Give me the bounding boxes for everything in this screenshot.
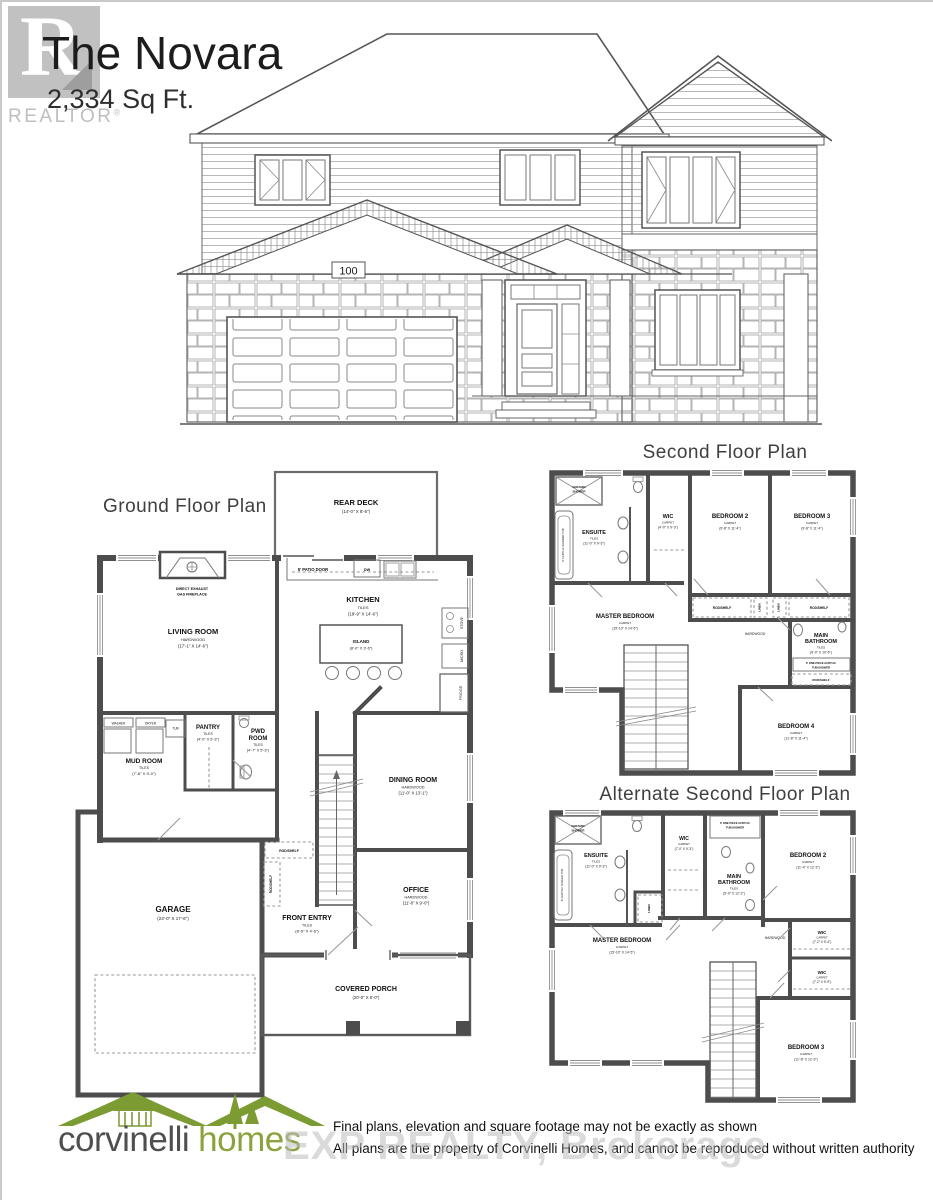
label-kitchen: KITCHEN	[346, 595, 379, 604]
label-linen: LINEN	[647, 904, 651, 912]
fridge: FRIDGE	[440, 674, 468, 712]
porch-post	[456, 1021, 470, 1035]
label-laundry-tub: TUB	[172, 727, 178, 731]
label-ceramic: CERAMIC	[572, 485, 586, 489]
front-elevation-drawing: 100	[172, 22, 832, 432]
label-fireplace-1: DIRECT EXHAUST	[176, 587, 209, 591]
right-fascia-band	[622, 234, 817, 250]
label-shower: SHOWER	[572, 490, 586, 494]
label-bedroom2-finish: CARPET	[724, 521, 736, 525]
alternate-floor-title: Alternate Second Floor Plan	[530, 784, 920, 806]
stairwell	[702, 962, 764, 1098]
label-garage: GARAGE	[155, 905, 191, 914]
garage: GARAGE (23'-0" X 17'-6")	[95, 818, 255, 1053]
label-bathroom: BATHROOM	[805, 639, 837, 645]
label-bedroom3-finish: CARPET	[806, 521, 818, 525]
label-micro: MICRO	[460, 650, 464, 662]
upper-right-window	[642, 152, 740, 228]
porch-post-left	[482, 280, 502, 396]
label-wic3-dims: (7'-2" X 5'-9")	[813, 980, 832, 984]
label-wic1-dims: (7'-0" X 9'-3")	[675, 847, 694, 851]
label-rear-deck-dims: (14'-0" X 8'-6")	[342, 509, 371, 514]
bedroom2-labels: BEDROOM 2 CARPET (11'-4" X 12'-3")	[763, 853, 827, 900]
label-bedroom2-dims: (9'-8" X 11'-4")	[719, 527, 741, 531]
garage-door-dashed-outline	[95, 975, 255, 1053]
upper-left-window	[255, 155, 330, 205]
sink	[615, 856, 625, 868]
covered-porch: COVERED PORCH (20'-0" X 6'-0")	[262, 927, 470, 1035]
label-mud-finish: TILES	[139, 766, 150, 770]
label-shower: SHOWER	[571, 829, 585, 833]
bedroom4-labels: BEDROOM 4 CARPET (11'-8" X 11'-4")	[758, 687, 815, 741]
toilet	[634, 482, 643, 493]
label-hardwood-hall: HARDWOOD	[745, 632, 766, 636]
label-mud-dims: (7'-8" X 9'-0")	[132, 771, 156, 776]
sink	[618, 551, 628, 563]
stool	[347, 667, 360, 680]
label-wic2: WIC	[818, 930, 827, 935]
label-wic1-finish: CARPET	[678, 842, 690, 846]
second-floor-plan: CERAMIC SHOWER 6' ACRYLIC SHOWER TUB ENS…	[530, 465, 920, 785]
address-number: 100	[339, 266, 357, 278]
label-porch-dims: (20'-0" X 6'-0")	[353, 995, 381, 1000]
label-garage-dims: (23'-0" X 17'-6")	[157, 916, 189, 921]
label-entry-finish: TILES	[302, 924, 313, 928]
sink	[615, 889, 625, 901]
label-dining-dims: (11'-0" X 13'-1")	[399, 791, 429, 796]
label-master: MASTER BEDROOM	[593, 938, 651, 944]
label-dining: DINING ROOM	[389, 777, 437, 784]
brand-corvinelli: corvinelli	[58, 1120, 189, 1159]
label-master-dims: (15'-10" X 14'-5")	[609, 951, 635, 955]
label-island: ISLAND	[353, 639, 371, 644]
sink	[618, 517, 628, 529]
label-soaker-tub: 6' ACRYLIC SOAKER TUB	[560, 869, 564, 901]
kitchen-sink	[384, 561, 416, 578]
label-pantry-finish: TILES	[203, 732, 213, 736]
toilet	[794, 624, 803, 636]
label-bedroom2: BEDROOM 2	[790, 853, 827, 859]
label-pwd-finish: TILES	[253, 743, 263, 747]
label-ensuite: ENSUITE	[582, 530, 606, 536]
label-pantry: PANTRY	[196, 725, 220, 731]
label-rod-shelf: ROD/SHELF	[812, 678, 830, 682]
label-bedroom2-dims: (11'-4" X 12'-3")	[796, 866, 819, 870]
label-wic2-finish: CARPET	[816, 936, 828, 940]
label-island-dims: (8'-0" X 3'-6")	[350, 646, 374, 651]
label-linen: LINEN	[758, 603, 762, 611]
office-labels: OFFICE HARDWOOD (11'-8" X 9'-0")	[355, 887, 430, 926]
builder-logo-text: corvinellihomes	[58, 1120, 301, 1160]
ground-floor-plan: REAR DECK (14'-0" X 8'-6") 5' PATIO DOOR	[60, 460, 480, 1105]
label-bathroom: BATHROOM	[718, 880, 750, 886]
upper-middle-window	[500, 150, 580, 205]
mud-room: WASHER DRYER TUB MUD ROOM TILES (7'-8" X…	[104, 718, 185, 776]
second-floor-title: Second Floor Plan	[530, 442, 920, 464]
label-bedroom3-finish: CARPET	[800, 1052, 812, 1056]
label-living-finish: HARDWOOD	[181, 637, 205, 642]
square-footage: 2,334 Sq Ft.	[47, 84, 194, 115]
label-bedroom2: BEDROOM 2	[712, 514, 749, 520]
label-ensuite-finish: TILES	[590, 537, 598, 541]
label-dishwasher: DW	[364, 568, 371, 572]
closet-row: ROD/SHELF LINEN LINEN ROD/SHELF	[693, 598, 849, 617]
label-master-finish: CARPET	[619, 621, 631, 625]
ensuite: CERAMIC SHOWER 6' ACRYLIC SOAKER TUB ENS…	[554, 816, 642, 939]
label-dining-finish: HARDWOOD	[402, 786, 425, 790]
hall-closets: ROD/SHELF ROD/SHELF	[264, 842, 313, 906]
label-bedroom3: BEDROOM 3	[794, 514, 831, 520]
label-bedroom4: BEDROOM 4	[778, 724, 815, 730]
address-plaque: 100	[332, 262, 365, 278]
master-bedroom-labels: MASTER BEDROOM CARPET (15'-10" X 14'-5")	[593, 925, 680, 955]
label-front-entry: FRONT ENTRY	[282, 915, 332, 922]
label-bath-dims: (6'-0" X 10'-6")	[810, 651, 832, 655]
label-acrylic-tub: 6' ACRYLIC SHOWER TUB	[561, 528, 565, 561]
sink	[746, 863, 754, 873]
pantry: PANTRY TILES (4'-0" X 5'-3")	[196, 725, 220, 788]
toilet	[633, 821, 642, 832]
label-linen: LINEN	[777, 603, 781, 611]
label-living-room: LIVING ROOM	[168, 627, 218, 636]
label-mud-room: MUD ROOM	[126, 758, 163, 765]
label-ceramic: CERAMIC	[571, 824, 585, 828]
label-entry-dims: (8'-5" X 4'-6")	[295, 929, 319, 934]
label-ensuite-dims: (11'-0" X 9'-3")	[583, 542, 605, 546]
label-wic-finish: CARPET	[662, 521, 674, 525]
label-onepiece-1: 6' ONE PIECE ACRYLIC	[806, 661, 836, 665]
bedroom3-labels: BEDROOM 3 CARPET (11'-8" X 12'-3")	[770, 983, 825, 1062]
minor-walls	[635, 892, 853, 958]
microwave-shelf: MICRO	[442, 644, 468, 668]
porch-post	[346, 1021, 360, 1035]
entry-steps	[496, 402, 596, 418]
walk-in-closet-1: WIC CARPET (7'-0" X 9'-3")	[668, 836, 700, 930]
stool	[368, 667, 381, 680]
label-bedroom3: BEDROOM 3	[788, 1045, 825, 1051]
bedroom2-labels: BEDROOM 2 CARPET (9'-8" X 11'-4")	[712, 514, 749, 531]
label-bath-finish: TILES	[817, 646, 825, 650]
label-bedroom4-dims: (11'-8" X 11'-4")	[784, 737, 807, 741]
label-kitchen-dims: (18'-9" X 14'-6")	[348, 612, 379, 617]
master-bedroom-labels: MASTER BEDROOM CARPET (15'-10" X 14'-5")	[596, 614, 654, 631]
front-door-opening	[324, 949, 392, 961]
label-bedroom3-dims: (11'-8" X 12'-3")	[794, 1058, 817, 1062]
label-bedroom4-finish: CARPET	[790, 731, 802, 735]
powder-room: PWD ROOM TILES (4'-7" X 5'-3")	[233, 716, 270, 779]
label-ensuite-dims: (11'-0" X 9'-3")	[585, 865, 607, 869]
label-pantry-dims: (4'-0" X 5'-3")	[197, 738, 220, 742]
label-patio-door: 5' PATIO DOOR	[298, 567, 328, 572]
label-pwd-dims: (4'-7" X 5'-3")	[247, 749, 270, 753]
dining-room-labels: DINING ROOM HARDWOOD (11'-0" X 13'-1")	[389, 777, 437, 796]
label-office-finish: HARDWOOD	[405, 896, 428, 900]
fireplace-symbol: DIRECT EXHAUST GAS FIREPLACE	[160, 552, 225, 597]
lower-right-window	[652, 290, 743, 376]
label-bedroom3-dims: (9'-8" X 11'-4")	[801, 527, 823, 531]
label-wic3: WIC	[818, 970, 827, 975]
plan-sheet: R REALTOR® The Novara 2,334 Sq Ft.	[0, 0, 933, 1200]
porch-post-right	[784, 274, 808, 422]
rear-deck: REAR DECK (14'-0" X 8'-6")	[275, 472, 437, 558]
stove: STOVE	[442, 608, 468, 638]
stool	[389, 667, 402, 680]
label-stove: STOVE	[460, 616, 464, 629]
label-bath-finish: TILES	[730, 887, 738, 891]
kitchen-island: ISLAND (8'-0" X 3'-6")	[320, 625, 402, 680]
label-office: OFFICE	[403, 887, 429, 894]
main-bathroom: 6' ONE PIECE ACRYLIC TUB/SHOWER MAIN BAT…	[710, 816, 760, 931]
label-master-dims: (15'-10" X 14'-5")	[612, 627, 638, 631]
label-master-finish: CARPET	[616, 945, 628, 949]
label-rod-shelf-vertical: ROD/SHELF	[269, 875, 273, 893]
label-kitchen-finish: TILES	[357, 605, 368, 610]
label-wic3-finish: CARPET	[816, 976, 828, 980]
label-rod-shelf: ROD/SHELF	[279, 849, 299, 853]
stairwell	[616, 645, 696, 769]
label-office-dims: (11'-8" X 9'-0")	[403, 901, 430, 906]
porch-post-mid	[610, 280, 630, 396]
label-fireplace-2: GAS FIREPLACE	[177, 593, 207, 597]
label-rod-shelf: ROD/SHELF	[810, 606, 828, 610]
label-master: MASTER BEDROOM	[596, 614, 654, 620]
label-bedroom2-finish: CARPET	[802, 860, 814, 864]
label-wic2-dims: (7'-2" X 5'-4")	[813, 940, 832, 944]
stool	[326, 667, 339, 680]
toilet	[746, 900, 755, 911]
front-door	[505, 280, 586, 396]
label-ensuite-finish: TILES	[592, 860, 600, 864]
garage-door	[227, 317, 457, 422]
toilet	[722, 847, 731, 858]
label-living-dims: (17'-1" X 14'-6")	[178, 644, 209, 649]
label-dryer: DRYER	[145, 722, 157, 726]
label-rear-deck: REAR DECK	[334, 498, 379, 507]
label-covered-porch: COVERED PORCH	[335, 986, 397, 993]
stairs-up	[310, 755, 363, 905]
front-entry-labels: FRONT ENTRY TILES (8'-5" X 4'-6")	[282, 915, 332, 934]
label-wic: WIC	[663, 514, 674, 520]
label-onepiece-2: TUB/SHOWER	[812, 666, 830, 670]
alternate-second-floor-plan: CERAMIC SHOWER 6' ACRYLIC SOAKER TUB ENS…	[530, 810, 920, 1110]
living-room-labels: LIVING ROOM HARDWOOD (17'-1" X 14'-6")	[168, 627, 218, 649]
label-rod-shelf: ROD/SHELF	[713, 606, 731, 610]
label-onepiece-2: TUB/SHOWER	[726, 826, 744, 830]
label-fridge: FRIDGE	[458, 685, 463, 700]
bedroom3-labels: BEDROOM 3 CARPET (9'-8" X 11'-4")	[794, 514, 831, 531]
label-hardwood-hall: HARDWOOD	[765, 936, 786, 940]
patio-door: 5' PATIO DOOR	[281, 553, 344, 572]
label-pwd-1: PWD	[251, 729, 266, 735]
sink	[838, 622, 846, 632]
page-title: The Novara	[42, 26, 282, 80]
label-washer: WASHER	[112, 722, 127, 726]
exp-realty-watermark: EXP REALTY, Brokerage	[283, 1124, 767, 1169]
label-ensuite: ENSUITE	[584, 853, 608, 859]
label-bath-dims: (5'-0" X 12'-2")	[723, 892, 745, 896]
label-wic-dims: (4'-0" X 9'-3")	[658, 526, 678, 530]
label-pwd-2: ROOM	[249, 736, 268, 742]
label-onepiece-1: 6' ONE PIECE ACRYLIC	[720, 821, 750, 825]
